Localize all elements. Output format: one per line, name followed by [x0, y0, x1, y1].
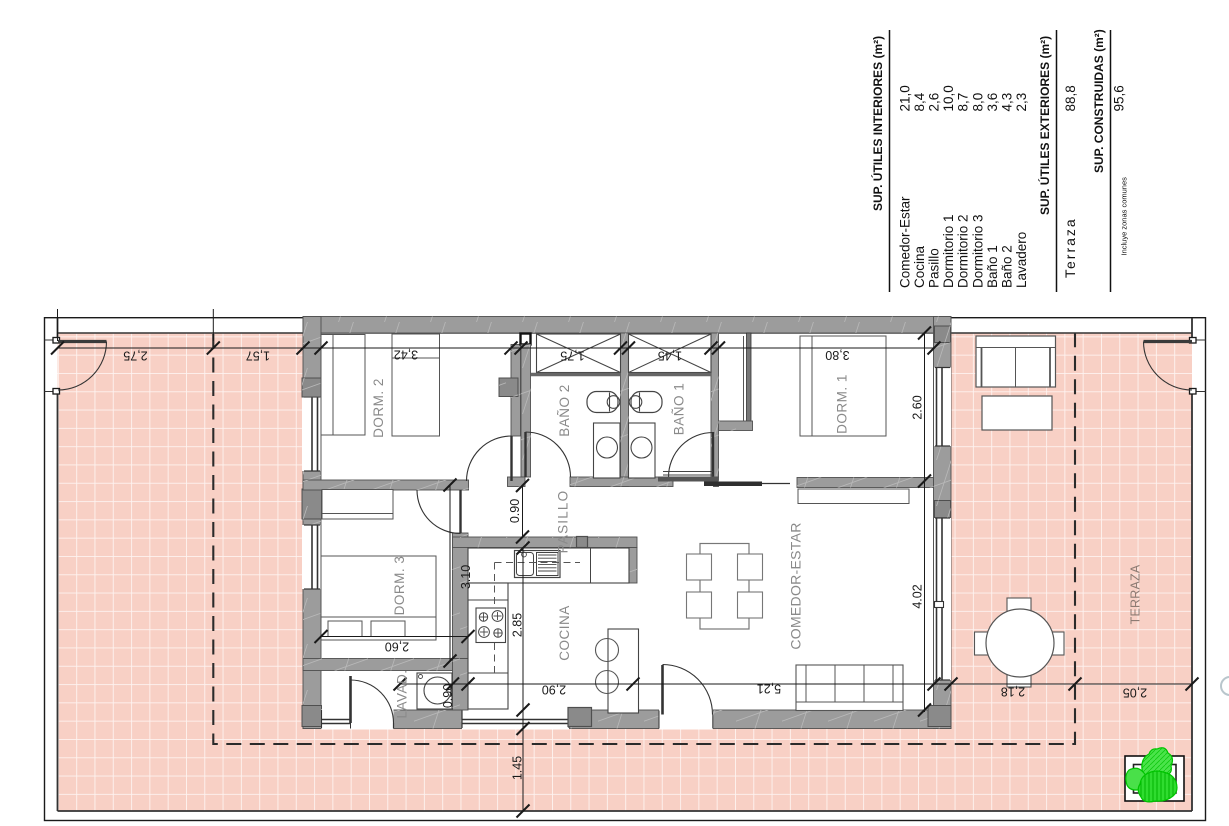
svg-text:Baño 1: Baño 1 — [985, 245, 1000, 288]
svg-text:4.02: 4.02 — [911, 584, 925, 608]
svg-text:0.90: 0.90 — [508, 499, 522, 523]
svg-text:0.90: 0.90 — [441, 684, 455, 708]
svg-text:DORM. 1: DORM. 1 — [835, 374, 850, 434]
svg-text:Dormitorio 1: Dormitorio 1 — [941, 214, 956, 288]
svg-text:2,3: 2,3 — [1014, 93, 1029, 112]
svg-text:DORM. 2: DORM. 2 — [371, 378, 386, 438]
svg-text:DORM. 3: DORM. 3 — [392, 556, 407, 616]
svg-text:Cocina: Cocina — [912, 245, 927, 288]
svg-text:3,42: 3,42 — [394, 348, 418, 362]
svg-text:PASILLO: PASILLO — [556, 490, 571, 554]
svg-text:SUP. ÚTILES EXTERIORES (m²): SUP. ÚTILES EXTERIORES (m²) — [1037, 36, 1052, 215]
svg-text:Dormitorio 3: Dormitorio 3 — [970, 214, 985, 288]
svg-text:95,6: 95,6 — [1112, 85, 1127, 111]
svg-text:8,4: 8,4 — [912, 92, 927, 111]
svg-text:Terraza: Terraza — [1062, 217, 1078, 278]
svg-text:2,60: 2,60 — [385, 640, 409, 654]
svg-text:3,80: 3,80 — [825, 348, 849, 362]
svg-text:Incluye zonas comunes: Incluye zonas comunes — [1120, 177, 1129, 256]
svg-text:8,7: 8,7 — [956, 93, 971, 112]
svg-text:LAVAD.: LAVAD. — [395, 669, 410, 718]
svg-text:TERRAZA: TERRAZA — [1129, 564, 1143, 624]
svg-text:2,18: 2,18 — [1001, 685, 1025, 699]
svg-text:3.10: 3.10 — [459, 565, 473, 589]
svg-text:BAÑO 2: BAÑO 2 — [557, 384, 572, 437]
svg-text:3,6: 3,6 — [985, 93, 1000, 112]
svg-text:Pasillo: Pasillo — [927, 248, 942, 288]
svg-text:2.85: 2.85 — [511, 613, 525, 637]
svg-text:21,0: 21,0 — [898, 85, 913, 111]
svg-text:8,0: 8,0 — [970, 93, 985, 112]
svg-text:Baño 2: Baño 2 — [999, 245, 1014, 288]
svg-text:2,75: 2,75 — [123, 349, 147, 363]
svg-text:2.60: 2.60 — [911, 395, 925, 419]
svg-text:5,21: 5,21 — [757, 682, 781, 696]
svg-text:1,75: 1,75 — [560, 349, 584, 363]
svg-text:SUP. CONSTRUIDAS (m²): SUP. CONSTRUIDAS (m²) — [1092, 29, 1106, 173]
svg-text:BAÑO 1: BAÑO 1 — [672, 383, 687, 436]
svg-text:1,57: 1,57 — [246, 349, 270, 363]
svg-text:1.45: 1.45 — [511, 756, 525, 780]
svg-text:1,45: 1,45 — [658, 349, 682, 363]
svg-text:2,05: 2,05 — [1123, 686, 1147, 700]
svg-text:2,6: 2,6 — [927, 93, 942, 112]
svg-text:88,8: 88,8 — [1063, 85, 1078, 111]
svg-text:COCINA: COCINA — [557, 605, 572, 661]
svg-text:COMEDOR-ESTAR: COMEDOR-ESTAR — [788, 522, 804, 649]
svg-text:Comedor-Estar: Comedor-Estar — [898, 196, 913, 288]
svg-text:SUP. ÚTILES INTERIORES (m²): SUP. ÚTILES INTERIORES (m²) — [870, 36, 885, 211]
svg-text:2,90: 2,90 — [542, 683, 566, 697]
svg-text:4,3: 4,3 — [999, 93, 1014, 112]
svg-text:10,0: 10,0 — [941, 85, 956, 111]
svg-text:Dormitorio 2: Dormitorio 2 — [956, 214, 971, 288]
svg-text:Lavadero: Lavadero — [1014, 232, 1029, 288]
